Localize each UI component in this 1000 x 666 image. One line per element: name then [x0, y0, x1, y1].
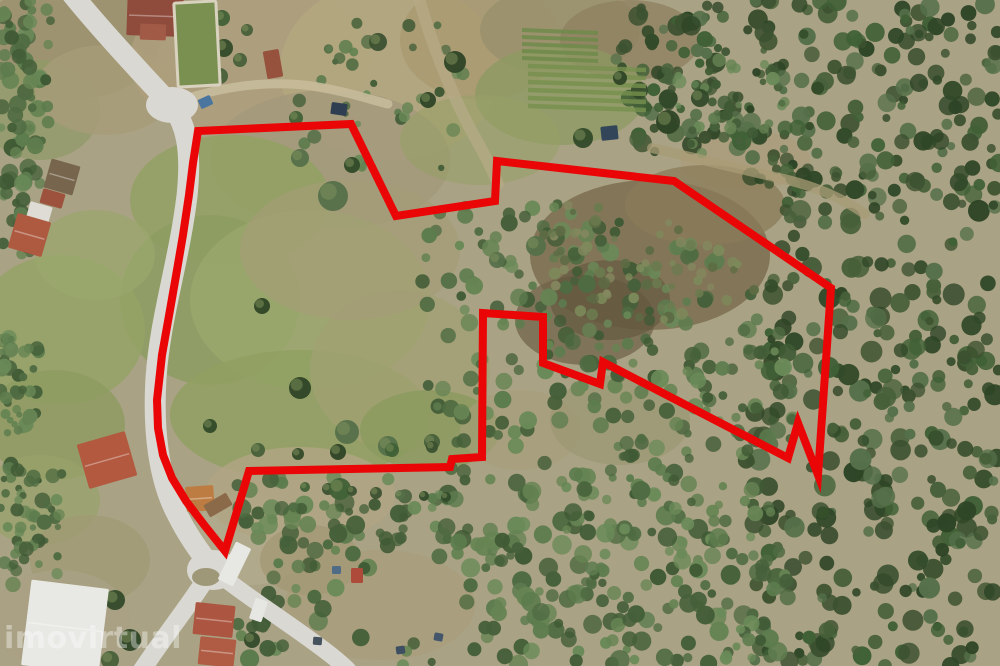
beehive-4 — [313, 637, 323, 646]
warehouse-white-roof — [21, 580, 109, 666]
house-top-left-wing — [140, 24, 167, 41]
tarp-red — [351, 568, 363, 583]
aerial-photo: imovirtual — [0, 0, 1000, 666]
house-bottom-red-roof-1 — [192, 602, 235, 638]
walled-garden — [174, 1, 220, 87]
car-dark — [330, 102, 348, 116]
house-bottom-red-roof-2 — [198, 636, 237, 666]
beehive-2 — [433, 632, 443, 641]
pickup-dark — [600, 125, 618, 141]
beehive-3 — [395, 645, 405, 654]
beehive-1 — [332, 566, 341, 574]
aerial-scene — [0, 0, 1000, 666]
